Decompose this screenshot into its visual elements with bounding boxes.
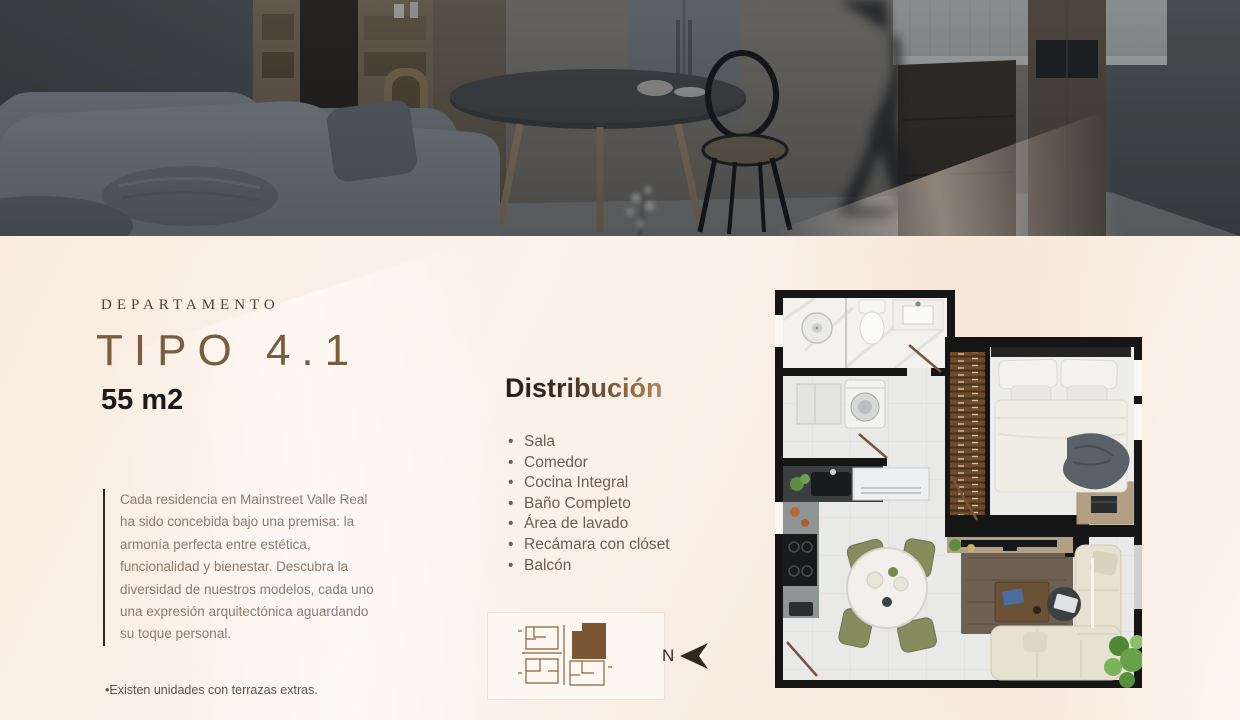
list-item: Sala (508, 432, 670, 453)
list-item: Recámara con clóset (508, 535, 670, 556)
north-compass: N (662, 641, 710, 671)
highlighted-unit (572, 623, 606, 659)
unit-eyebrow: DEPARTAMENTO (101, 297, 280, 314)
key-plan-card (487, 612, 665, 700)
list-item: Balcón (508, 556, 670, 577)
key-plan-thumbnail (488, 613, 662, 697)
distribution-title: Distribución (505, 373, 663, 404)
unit-area: 55 m2 (101, 384, 183, 417)
list-item: Área de lavado (508, 514, 670, 535)
north-arrow-icon (676, 641, 710, 671)
closet (950, 352, 985, 515)
floor-plan-image (775, 290, 1142, 688)
tv-console (947, 537, 1073, 553)
bed (991, 347, 1131, 492)
list-item: Cocina Integral (508, 473, 670, 494)
floor-plan-illustration (775, 290, 1142, 688)
brochure-page: DEPARTAMENTO TIPO 4.1 55 m2 Cada residen… (0, 0, 1240, 720)
distribution-list: Sala Comedor Cocina Integral Baño Comple… (508, 432, 670, 576)
coffee-table (995, 582, 1081, 622)
unit-description: Cada residencia en Mainstreet Valle Real… (103, 489, 382, 646)
list-item: Comedor (508, 453, 670, 474)
list-item: Baño Completo (508, 494, 670, 515)
unit-title: TIPO 4.1 (96, 326, 360, 376)
north-label: N (662, 646, 674, 666)
terrace-footnote: •Existen unidades con terrazas extras. (105, 683, 318, 697)
